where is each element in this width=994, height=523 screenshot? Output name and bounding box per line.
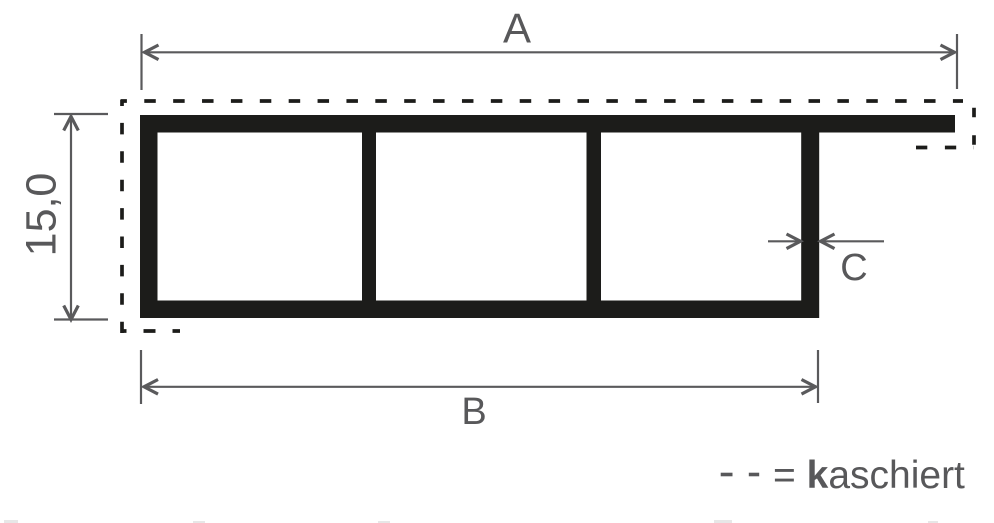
svg-text:= kaschiert: = kaschiert	[773, 454, 965, 497]
svg-text:15,0: 15,0	[18, 173, 66, 257]
svg-text:B: B	[461, 391, 486, 433]
svg-text:C: C	[840, 247, 867, 289]
svg-text:A: A	[503, 4, 531, 51]
